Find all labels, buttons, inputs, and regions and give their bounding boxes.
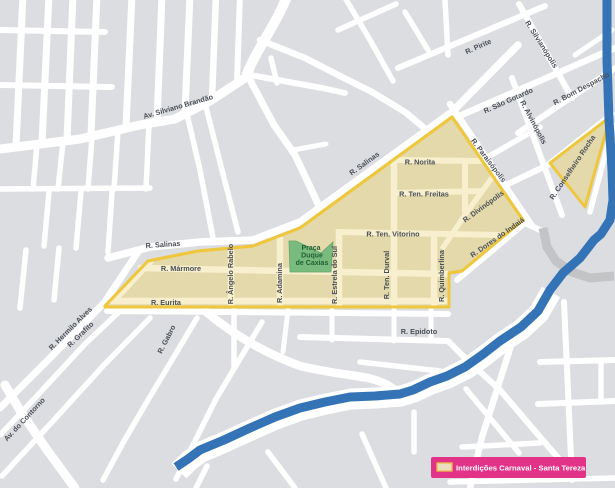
svg-text:R. Ten. Durval: R. Ten. Durval	[382, 251, 391, 300]
svg-text:Interdições Carnaval - Santa T: Interdições Carnaval - Santa Tereza	[456, 464, 586, 473]
svg-text:de Caxias: de Caxias	[296, 260, 329, 267]
svg-text:R. Estrela do Sul: R. Estrela do Sul	[330, 246, 339, 304]
svg-text:R. Ângelo Rabelo: R. Ângelo Rabelo	[226, 243, 235, 304]
svg-text:R. Quimberlina: R. Quimberlina	[437, 249, 446, 302]
svg-text:R. Mármore: R. Mármore	[161, 264, 201, 273]
svg-text:R. Epidoto: R. Epidoto	[401, 327, 438, 336]
svg-text:R. Norita: R. Norita	[405, 158, 436, 167]
svg-text:R. Ten. Freitas: R. Ten. Freitas	[399, 190, 449, 199]
svg-text:R. Eurita: R. Eurita	[151, 298, 182, 307]
svg-text:Duque: Duque	[301, 253, 323, 260]
svg-text:R. Ten. Vitorino: R. Ten. Vitorino	[366, 230, 420, 239]
svg-text:R. Adamina: R. Adamina	[275, 262, 284, 303]
svg-text:Praça: Praça	[301, 245, 320, 252]
